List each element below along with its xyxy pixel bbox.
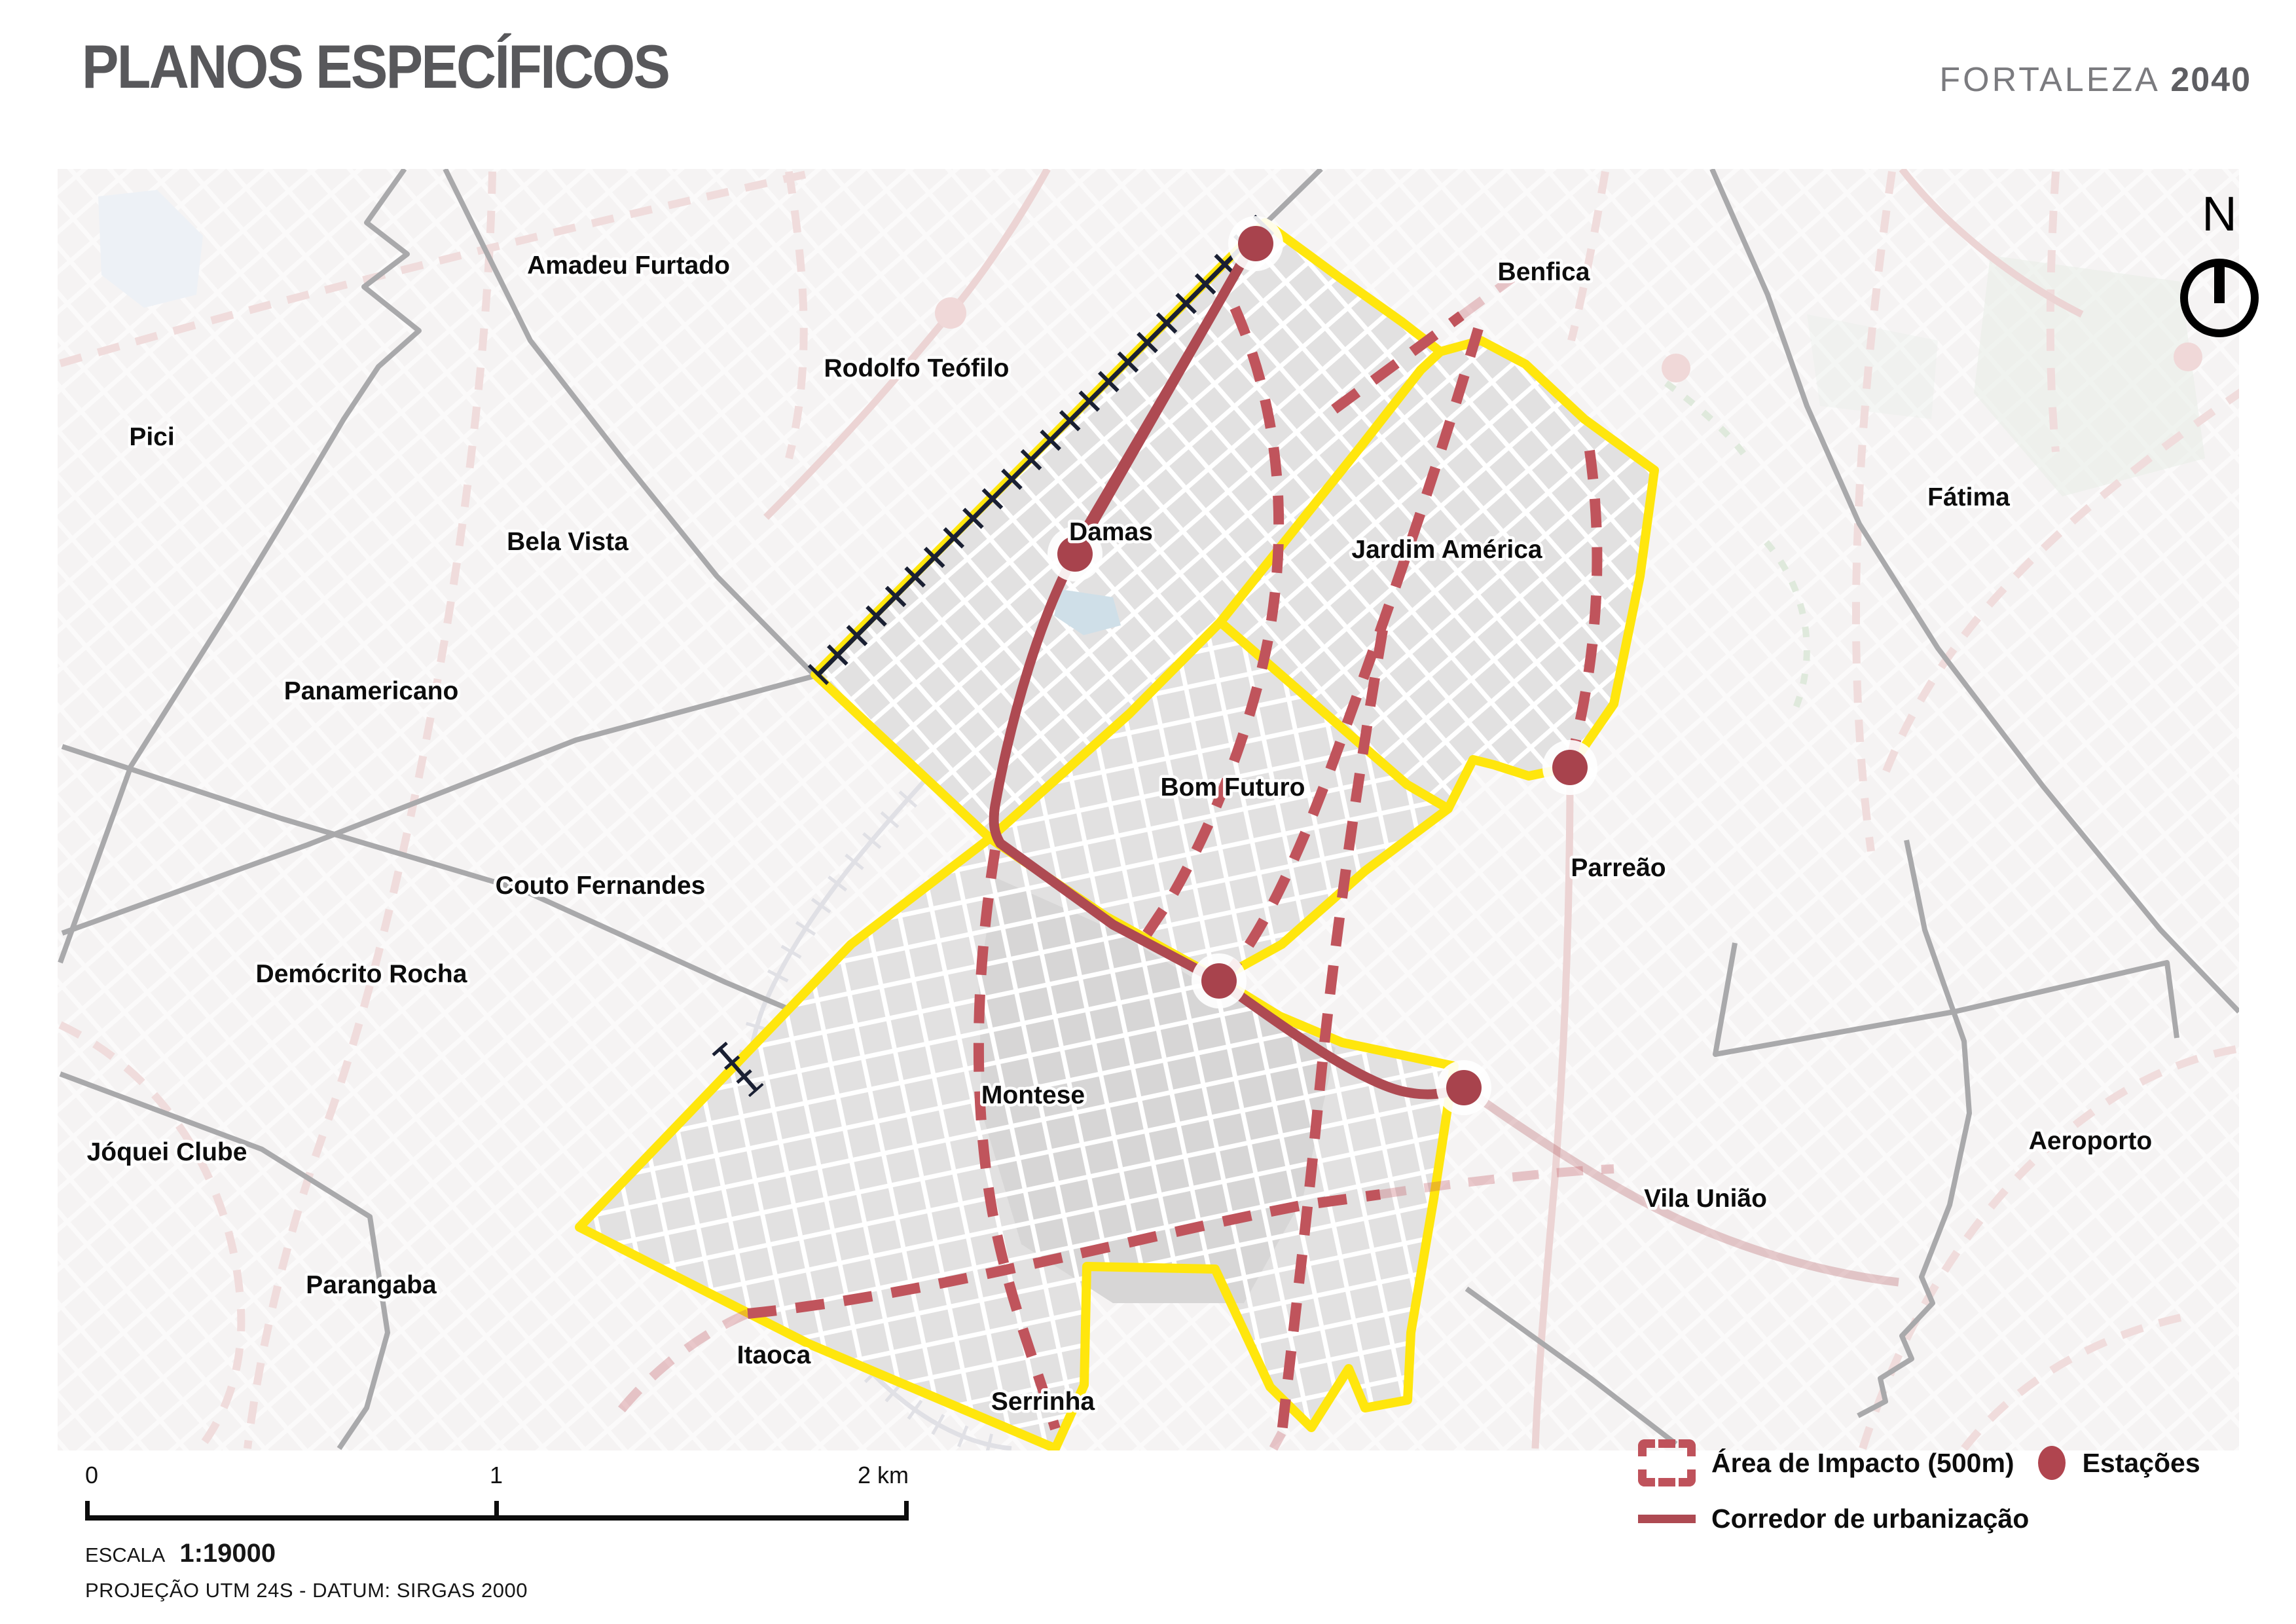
neighborhood-label: Rodolfo Teófilo <box>824 354 1009 382</box>
neighborhood-label: Fátima <box>1927 483 2010 511</box>
neighborhood-label: Serrinha <box>991 1388 1095 1416</box>
station-marker <box>1446 1070 1482 1105</box>
neighborhood-label: Jóquei Clube <box>87 1138 247 1166</box>
scale-tick-0: 0 <box>85 1462 98 1489</box>
station-marker <box>1552 750 1588 785</box>
legend-corridor-label: Corredor de urbanização <box>1711 1504 2029 1534</box>
station-dot-icon <box>2038 1446 2066 1480</box>
projection-note: PROJEÇÃO UTM 24S - DATUM: SIRGAS 2000 <box>85 1579 909 1602</box>
station-marker <box>1201 963 1237 999</box>
neighborhood-label: Bom Futuro <box>1161 773 1305 802</box>
legend: Área de Impacto (500m) Estações Corredor… <box>1638 1439 2280 1551</box>
scale-bar: 0 1 2 km ESCALA1:19000 PROJEÇÃO UTM 24S … <box>85 1462 909 1602</box>
page-title: PLANOS ESPECÍFICOS <box>82 31 668 102</box>
scale-tick-2: 2 km <box>858 1462 909 1489</box>
neighborhood-label: Bela Vista <box>507 528 629 556</box>
brand-logo: FORTALEZA 2040 <box>1939 60 2251 100</box>
station-marker <box>1238 226 1273 261</box>
north-label: N <box>2202 187 2236 241</box>
map-sheet: Amadeu FurtadoRodolfo TeófiloPiciBela Vi… <box>0 0 2296 1624</box>
neighborhood-label: Panamericano <box>284 677 459 705</box>
neighborhood-label: Aeroporto <box>2029 1127 2153 1155</box>
brand-year: 2040 <box>2170 61 2251 99</box>
scale-tick-1: 1 <box>490 1462 503 1489</box>
neighborhood-label: Demócrito Rocha <box>256 960 467 988</box>
neighborhood-label: Damas <box>1069 518 1153 546</box>
neighborhood-label: Itaoca <box>737 1341 811 1369</box>
corridor-line-icon <box>1638 1515 1696 1523</box>
neighborhood-label: Montese <box>981 1081 1085 1109</box>
city-map: Amadeu FurtadoRodolfo TeófiloPiciBela Vi… <box>0 0 2296 1624</box>
neighborhood-label: Vila União <box>1644 1185 1767 1213</box>
neighborhood-label: Jardim América <box>1351 536 1542 564</box>
neighborhood-label: Couto Fernandes <box>496 872 706 900</box>
brand-name: FORTALEZA <box>1939 61 2160 99</box>
neighborhood-label: Parangaba <box>306 1271 437 1299</box>
legend-stations-label: Estações <box>2083 1448 2200 1479</box>
scale-ratio: 1:19000 <box>179 1539 276 1568</box>
impact-area-swatch-icon <box>1638 1439 1696 1486</box>
escala-label: ESCALA <box>85 1543 165 1566</box>
neighborhood-label: Benfica <box>1498 258 1590 286</box>
neighborhood-label: Parreão <box>1571 854 1666 882</box>
neighborhood-label: Pici <box>129 423 174 451</box>
neighborhood-label: Amadeu Furtado <box>527 251 730 280</box>
legend-impact-area-label: Área de Impacto (500m) <box>1711 1448 2014 1479</box>
